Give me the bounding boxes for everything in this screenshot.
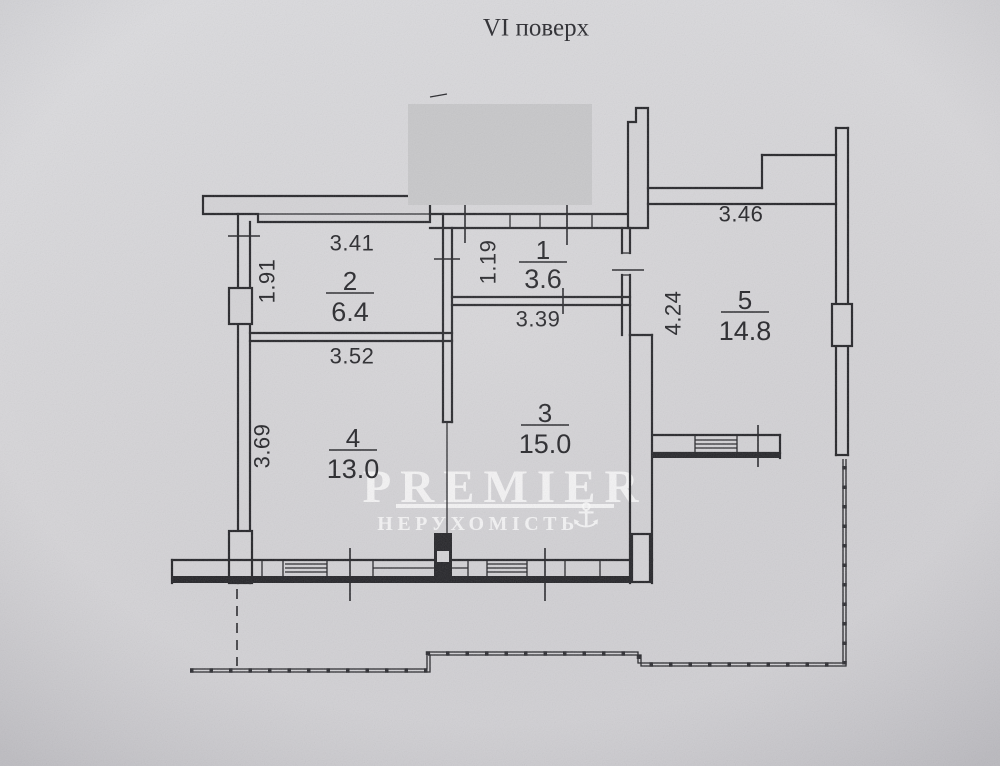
photo-vignette-overlay <box>0 0 1000 766</box>
floorplan-drawing: PREMIER НЕРУХОМІСТЬ ⚓ <box>0 0 1000 766</box>
floorplan-photo: PREMIER НЕРУХОМІСТЬ ⚓ <box>0 0 1000 766</box>
